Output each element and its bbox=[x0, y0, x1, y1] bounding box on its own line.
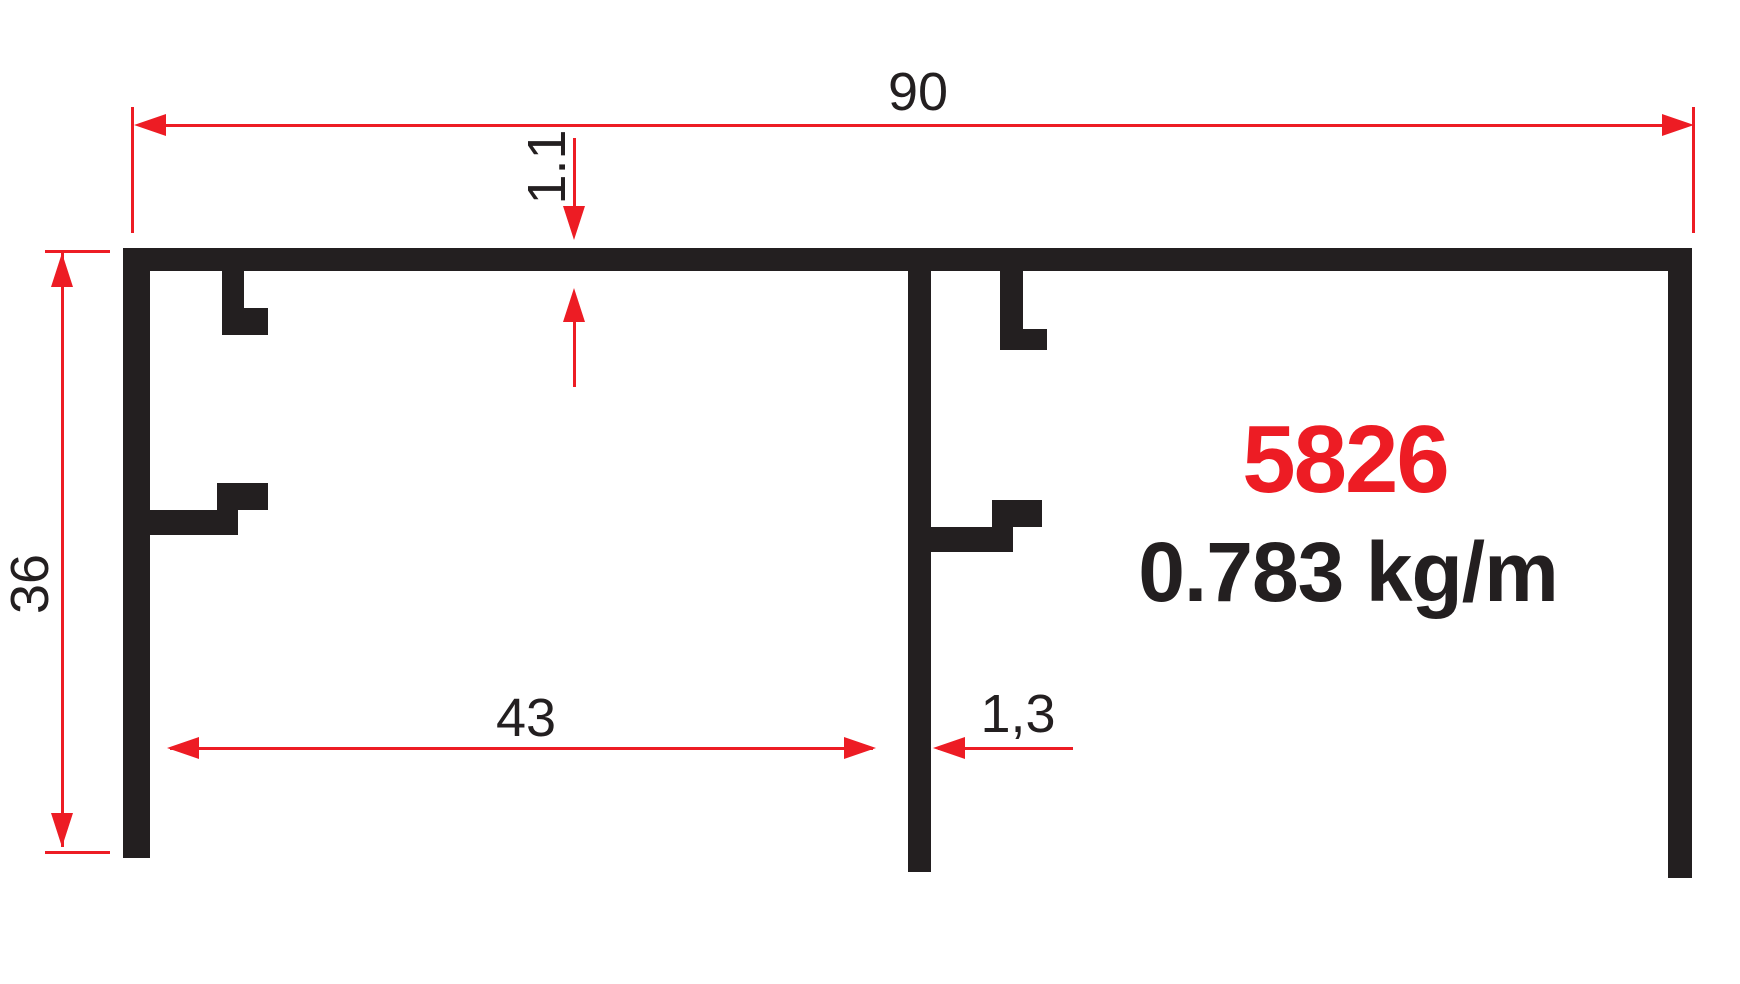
profile-center-wall bbox=[908, 248, 931, 872]
left-upper-hook-stem bbox=[222, 271, 244, 335]
dim-thickness-line-lower bbox=[573, 320, 576, 387]
profile-right-wall bbox=[1668, 248, 1692, 878]
center-upper-hook-foot bbox=[1023, 329, 1047, 350]
dim-width-arrowhead-right bbox=[1662, 114, 1694, 136]
center-upper-hook-stem bbox=[1000, 271, 1023, 350]
dim-wall-line bbox=[938, 747, 1073, 750]
profile-left-wall bbox=[123, 248, 150, 858]
left-upper-hook-foot bbox=[244, 308, 268, 335]
dim-height-arrowhead-down bbox=[51, 813, 73, 847]
dim-thickness-arrowhead-up bbox=[563, 288, 585, 322]
left-lower-hook-nub bbox=[217, 483, 268, 510]
center-lower-hook-arm bbox=[931, 527, 1013, 552]
center-lower-hook-nub bbox=[992, 500, 1042, 527]
profile-drawing-canvas: 90 1.1 36 43 1,3 5826 0.783 kg/m bbox=[0, 0, 1740, 984]
dim-width-arrowhead-left bbox=[134, 114, 166, 136]
dim-width-line bbox=[140, 124, 1688, 127]
dim-height-tick-bottom bbox=[45, 851, 110, 854]
dim-channel-arrowhead-left bbox=[167, 737, 199, 759]
dim-thickness-label: 1.1 bbox=[520, 129, 574, 204]
profile-code-label: 5826 bbox=[1242, 412, 1448, 508]
dim-wall-label: 1,3 bbox=[980, 687, 1055, 741]
dim-width-label: 90 bbox=[888, 65, 948, 119]
dim-height-arrowhead-up bbox=[51, 253, 73, 287]
dim-channel-arrowhead-right bbox=[844, 737, 876, 759]
left-lower-hook-arm bbox=[150, 510, 238, 535]
dim-height-line bbox=[61, 253, 64, 847]
dim-thickness-arrowhead-down bbox=[563, 206, 585, 240]
profile-weight-label: 0.783 kg/m bbox=[1138, 530, 1558, 614]
dim-channel-label: 43 bbox=[496, 691, 556, 745]
dim-height-label: 36 bbox=[3, 554, 57, 614]
